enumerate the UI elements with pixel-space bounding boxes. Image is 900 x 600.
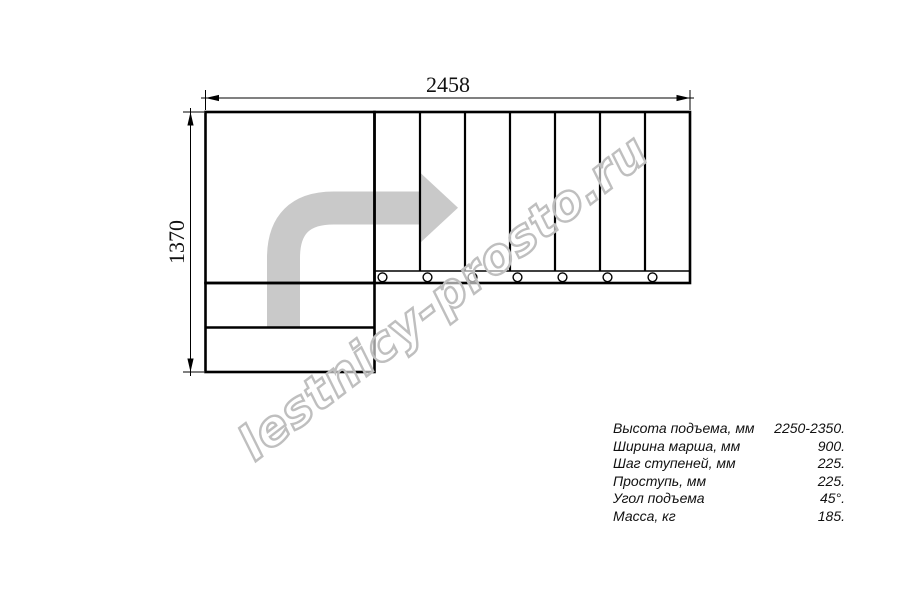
spec-value: 185. [818,508,845,526]
spec-label: Высота подъема, мм [613,420,755,438]
spec-label: Ширина марша, мм [613,438,740,456]
top-dimension: 2458 [201,72,694,110]
height-dimension-label: 1370 [164,220,189,264]
spec-value: 225. [818,473,845,491]
spec-table: Высота подъема, мм 2250-2350. Ширина мар… [613,420,845,526]
left-dimension: 1370 [164,108,204,376]
stair-plan-drawing: 2458 1370 lestnicy-prosto.ru Высота подъ… [0,0,900,600]
dimension-arrow-down-icon [187,359,193,373]
spec-row-march-width: Ширина марша, мм 900. [613,438,845,456]
spec-value: 225. [818,455,845,473]
spec-label: Угол подъема [613,490,705,508]
spec-label: Масса, кг [613,508,676,526]
dimension-arrow-up-icon [187,112,193,126]
spec-value: 900. [818,438,845,456]
spec-label: Шаг ступеней, мм [613,455,736,473]
direction-arrow-head [420,173,458,244]
spec-row-height: Высота подъема, мм 2250-2350. [613,420,845,438]
width-dimension-label: 2458 [426,72,470,97]
spec-row-mass: Масса, кг 185. [613,508,845,526]
dimension-arrow-right-icon [677,95,691,101]
spec-value: 45°. [820,490,845,508]
spec-row-step-pitch: Шаг ступеней, мм 225. [613,455,845,473]
spec-row-tread: Проступь, мм 225. [613,473,845,491]
spec-label: Проступь, мм [613,473,706,491]
dimension-arrow-left-icon [206,95,220,101]
spec-row-angle: Угол подъема 45°. [613,490,845,508]
spec-value: 2250-2350. [774,420,845,438]
